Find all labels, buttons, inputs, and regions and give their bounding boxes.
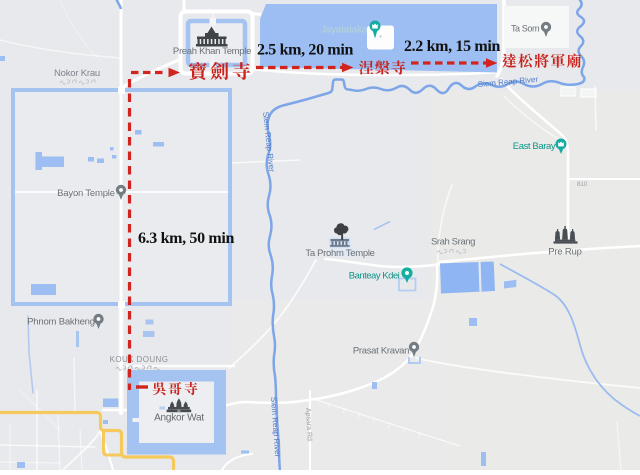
svg-text:Angkor Wat: Angkor Wat — [154, 413, 204, 424]
svg-text:Preah Khan Temple: Preah Khan Temple — [173, 46, 251, 57]
svg-text:KOUK DOUNG: KOUK DOUNG — [110, 355, 169, 364]
svg-text:Prasat Kravan: Prasat Kravan — [353, 346, 409, 357]
svg-text:Nokor Krau: Nokor Krau — [54, 68, 100, 79]
svg-text:810: 810 — [577, 181, 588, 188]
svg-text:Ta Som: Ta Som — [511, 24, 539, 34]
svg-text:6.3 km, 50 min: 6.3 km, 50 min — [138, 230, 234, 247]
svg-text:Phnom Bakheng: Phnom Bakheng — [27, 317, 95, 328]
svg-text:Pre Rup: Pre Rup — [548, 247, 581, 258]
svg-text:Srah Srang: Srah Srang — [431, 237, 475, 248]
svg-text:Banteay Kdei: Banteay Kdei — [349, 271, 400, 282]
svg-text:2.2 km, 15 min: 2.2 km, 15 min — [404, 38, 500, 55]
svg-text:East Baray: East Baray — [513, 141, 556, 152]
svg-text:Ta Prohm Temple: Ta Prohm Temple — [305, 248, 374, 259]
svg-text:Bayon Temple: Bayon Temple — [57, 188, 115, 199]
svg-text:2.5 km, 20 min: 2.5 km, 20 min — [257, 42, 353, 59]
svg-text:Jayatataka: Jayatataka — [321, 25, 368, 36]
